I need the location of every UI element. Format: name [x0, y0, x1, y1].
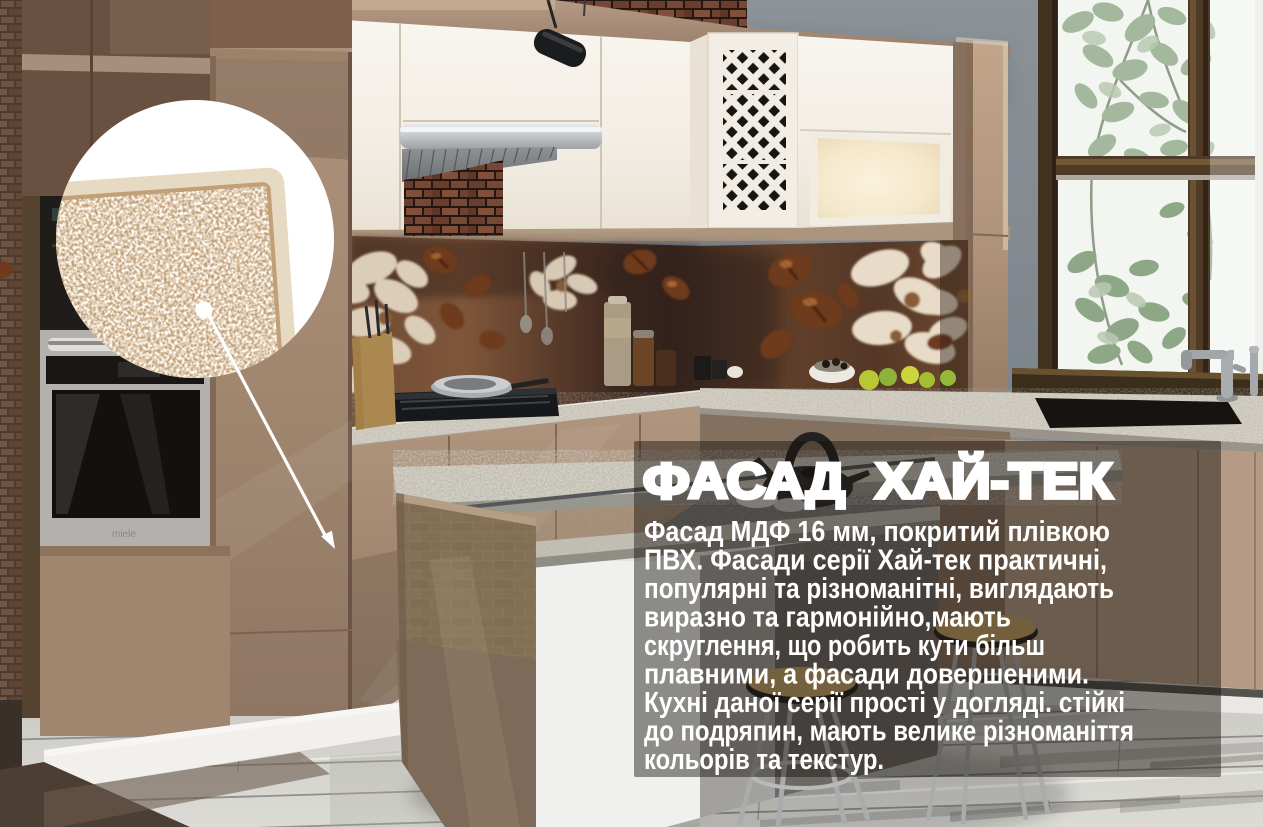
svg-text:кольорів та текстур.: кольорів та текстур. — [644, 744, 884, 776]
svg-text:плавними, а фасади довершеними: плавними, а фасади довершеними. — [644, 659, 1089, 691]
svg-text:популярні та різноманітні, виг: популярні та різноманітні, виглядають — [644, 573, 1114, 605]
svg-text:Фасад МДФ 16 мм, покритий плів: Фасад МДФ 16 мм, покритий плівкою — [644, 516, 1110, 548]
svg-text:виразно та гармонійно,мають: виразно та гармонійно,мають — [644, 602, 1011, 634]
svg-text:miele: miele — [112, 529, 136, 540]
svg-text:Кухні даної серії прості у дог: Кухні даної серії прості у догляді. стій… — [644, 687, 1125, 719]
svg-text:ПВХ. Фасади серії Хай-тек прак: ПВХ. Фасади серії Хай-тек практичні, — [644, 545, 1107, 577]
svg-text:до подряпин, мають велике різн: до подряпин, мають велике різноманіття — [644, 716, 1134, 748]
svg-text:скруглення, що робить кути біл: скруглення, що робить кути більш — [644, 630, 1045, 662]
svg-text:ФАСАД ХАЙ-ТЕК: ФАСАД ХАЙ-ТЕК — [643, 452, 1113, 509]
